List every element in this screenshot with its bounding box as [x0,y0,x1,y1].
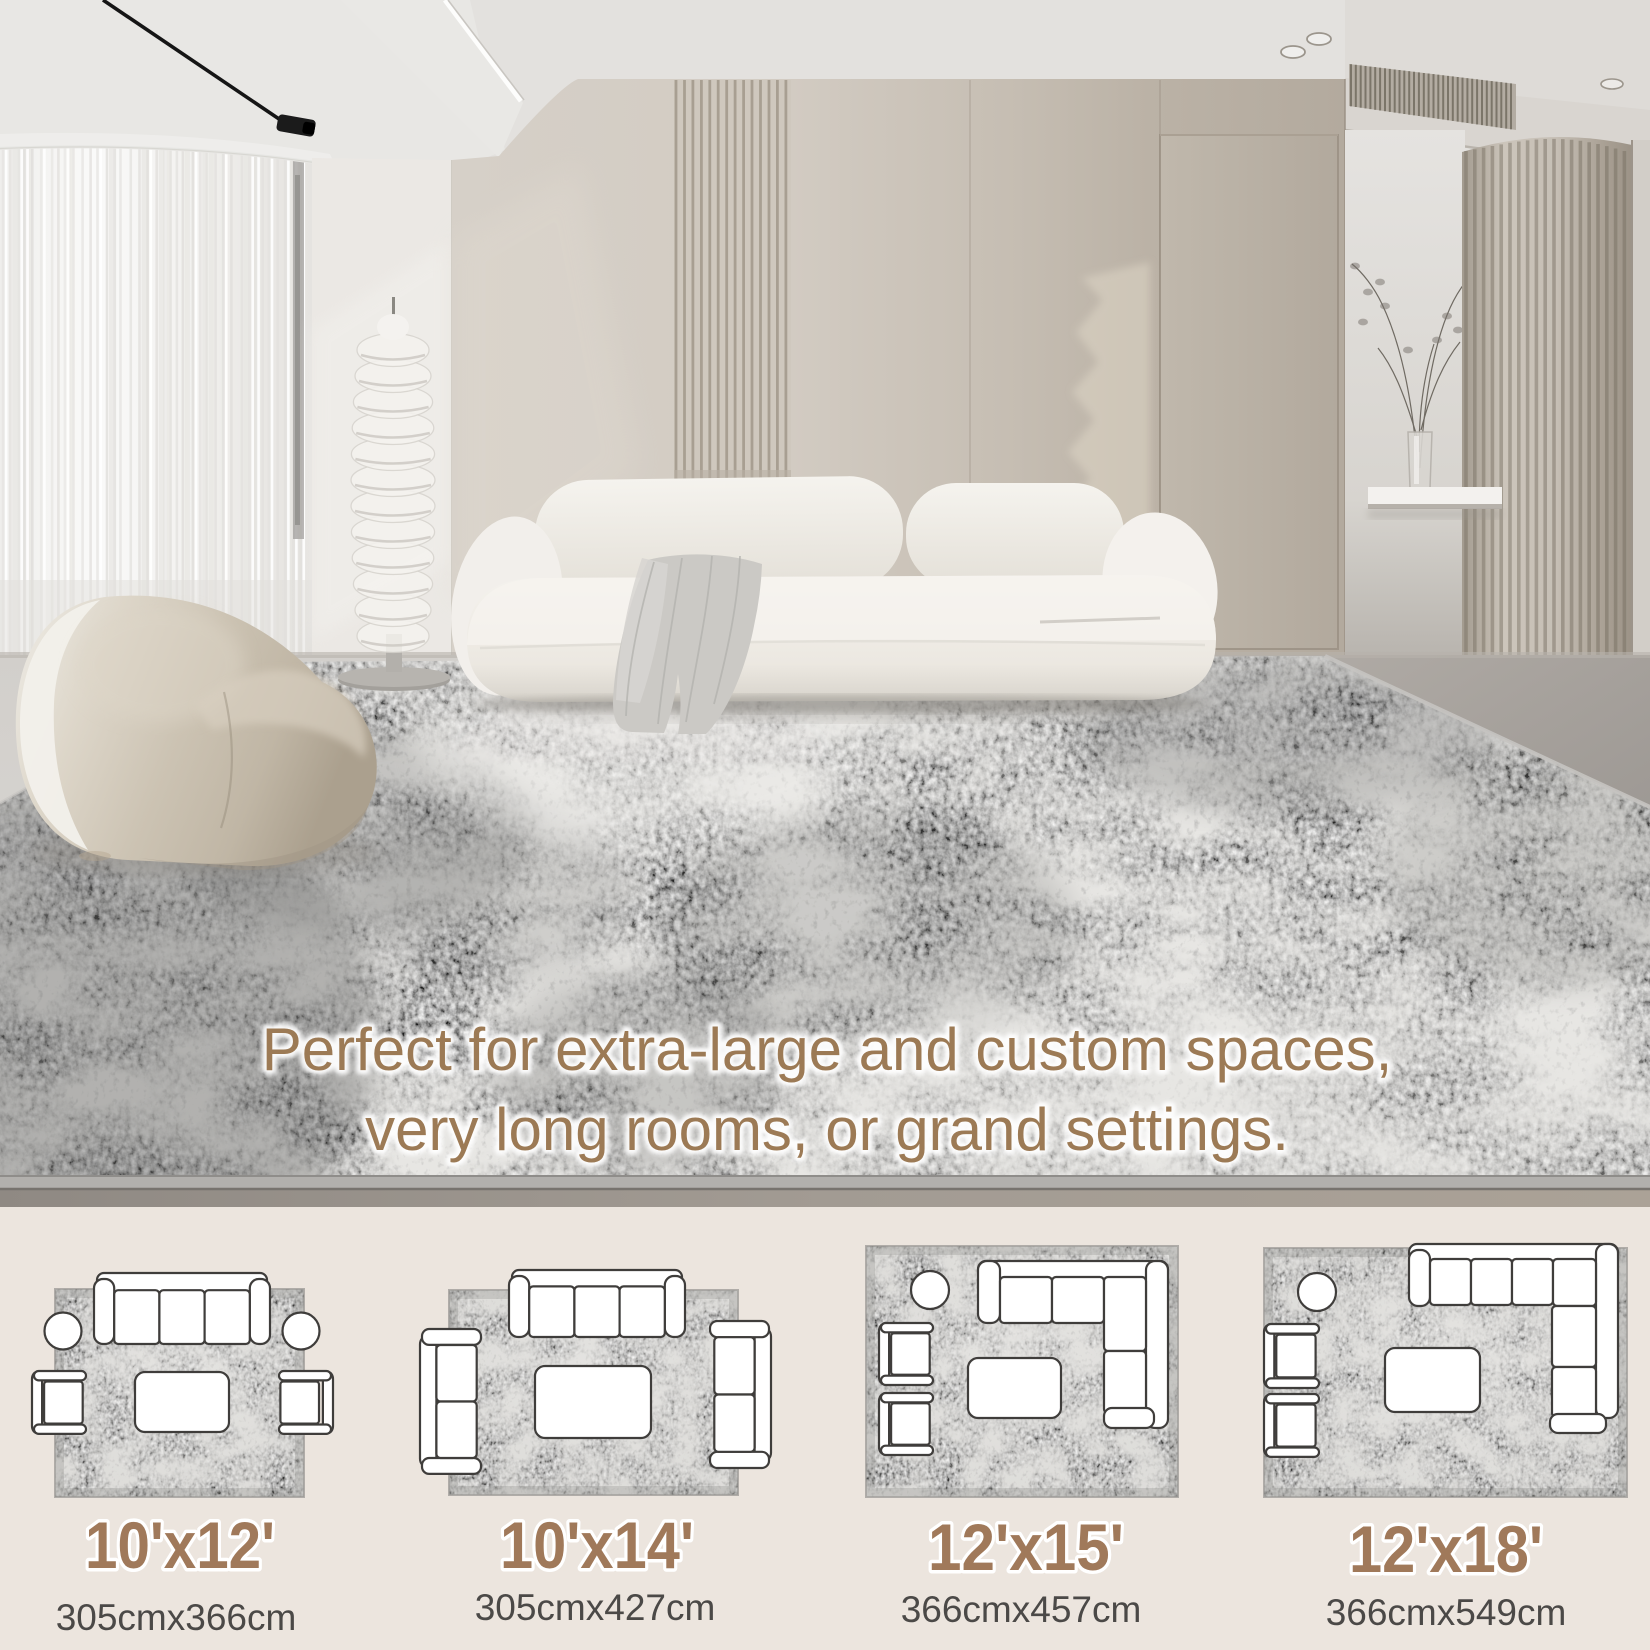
svg-text:366cmx549cm: 366cmx549cm [1326,1592,1567,1633]
svg-text:366cmx457cm: 366cmx457cm [901,1589,1142,1630]
svg-text:10'x12': 10'x12' [85,1508,275,1582]
svg-text:12'x18': 12'x18' [1349,1512,1543,1586]
svg-text:10'x14': 10'x14' [500,1508,694,1582]
svg-text:Perfect for extra-large and cu: Perfect for extra-large and custom space… [262,1016,1393,1083]
svg-text:305cmx366cm: 305cmx366cm [56,1597,297,1638]
svg-text:very long rooms, or grand sett: very long rooms, or grand settings. [365,1096,1289,1163]
svg-text:12'x15': 12'x15' [928,1510,1124,1584]
svg-text:305cmx427cm: 305cmx427cm [475,1587,716,1628]
